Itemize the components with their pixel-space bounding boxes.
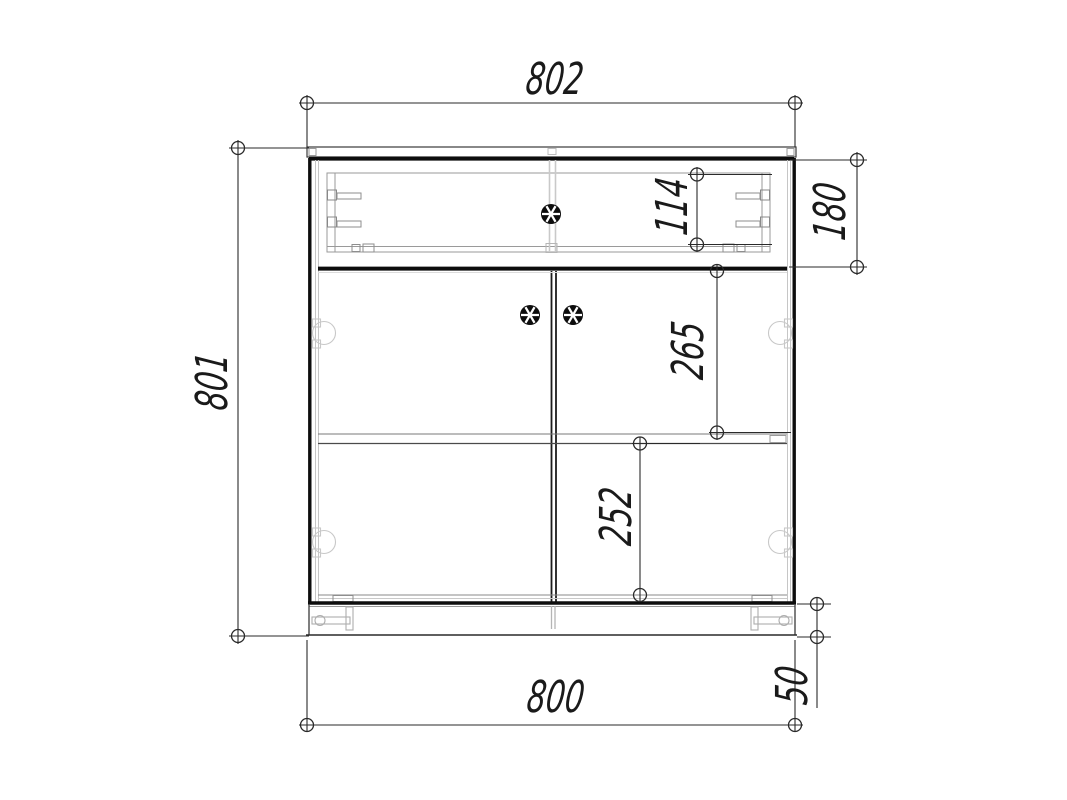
dim-label-body-width: 800	[524, 671, 587, 722]
drawer-knob-icon	[541, 204, 561, 224]
center-plinth-support	[552, 606, 556, 629]
dim-label-drawer-section: 180	[804, 180, 855, 243]
dim-label-drawer-box-height: 114	[646, 175, 697, 238]
cabinet-technical-drawing: 802 801 114 180 265 252 800 50	[0, 0, 1067, 800]
dim-label-upper-compartment: 265	[662, 319, 713, 382]
dimension-labels: 802 801 114 180 265 252 800 50	[186, 53, 855, 722]
top-panel	[307, 147, 796, 159]
plinth	[306, 605, 797, 635]
right-foot-icon	[751, 607, 792, 630]
left-foot-icon	[312, 607, 353, 630]
dim-lower-compartment-252	[632, 437, 700, 602]
dim-upper-compartment-265	[709, 264, 791, 440]
left-door-knob-icon	[520, 305, 540, 325]
right-door-knob-icon	[563, 305, 583, 325]
dim-label-overall-height: 801	[186, 350, 237, 413]
hinge-top-right-icon	[769, 319, 793, 348]
dim-label-top-width: 802	[523, 53, 586, 104]
drawing-canvas: 802 801 114 180 265 252 800 50	[0, 0, 1067, 800]
hinge-bottom-right-icon	[769, 528, 793, 557]
dimension-annotations	[229, 95, 867, 732]
dim-overall-height-801	[229, 140, 309, 644]
door-center-gap	[552, 271, 557, 602]
dim-label-plinth-height: 50	[766, 663, 817, 707]
dim-drawer-box-height-114	[688, 167, 772, 252]
cabinet-front-view	[306, 147, 797, 635]
dim-label-lower-compartment: 252	[590, 485, 641, 548]
